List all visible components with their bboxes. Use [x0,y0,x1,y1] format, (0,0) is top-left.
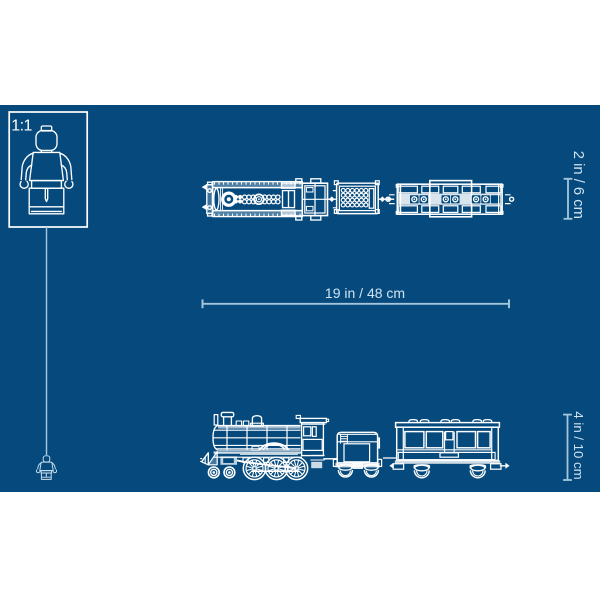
svg-text:1:1: 1:1 [11,118,32,135]
svg-text:19 in / 48 cm: 19 in / 48 cm [325,285,405,301]
svg-text:4 in / 10 cm: 4 in / 10 cm [571,411,586,479]
svg-text:2 in / 6 cm: 2 in / 6 cm [570,151,586,219]
